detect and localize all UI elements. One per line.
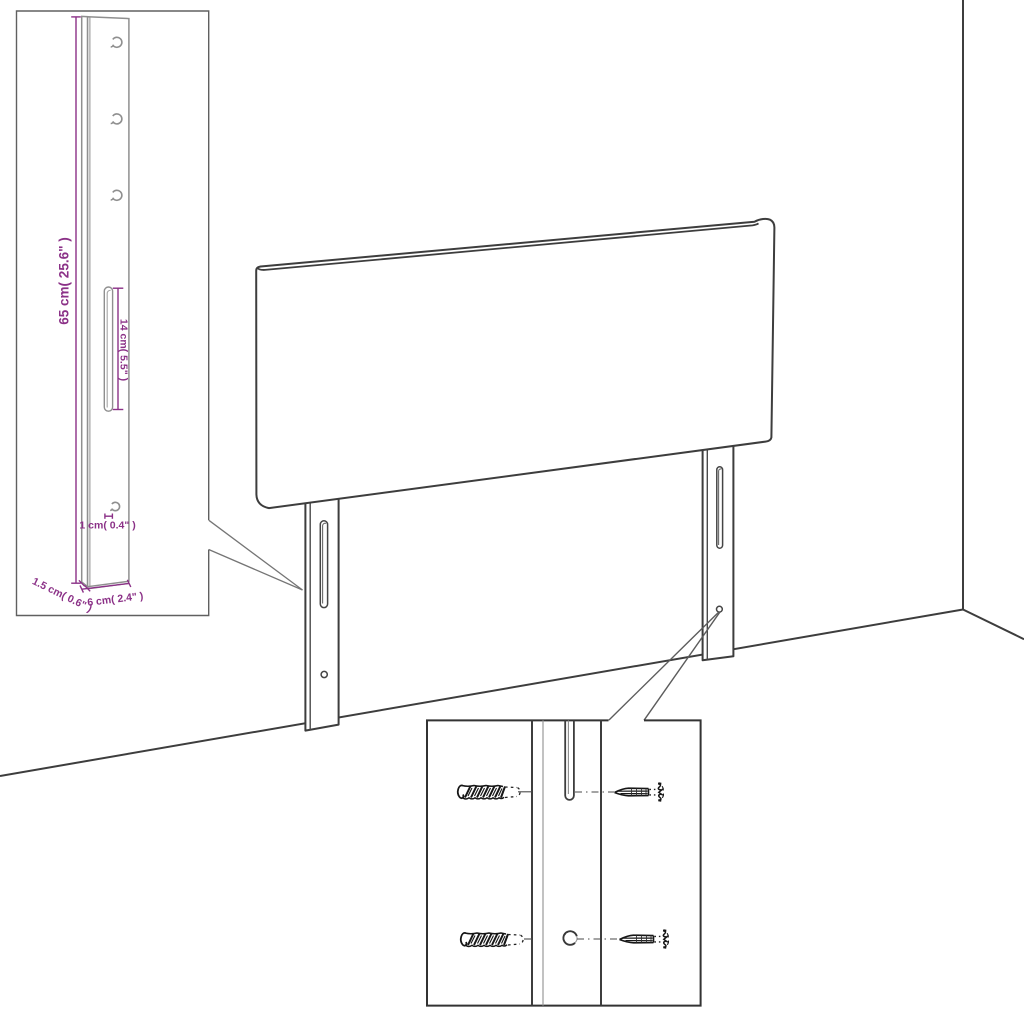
svg-text:14 cm( 5.5" ): 14 cm( 5.5" ) bbox=[118, 319, 130, 381]
svg-text:65 cm( 25.6" ): 65 cm( 25.6" ) bbox=[56, 237, 71, 324]
svg-text:1 cm( 0.4" ): 1 cm( 0.4" ) bbox=[79, 520, 135, 532]
